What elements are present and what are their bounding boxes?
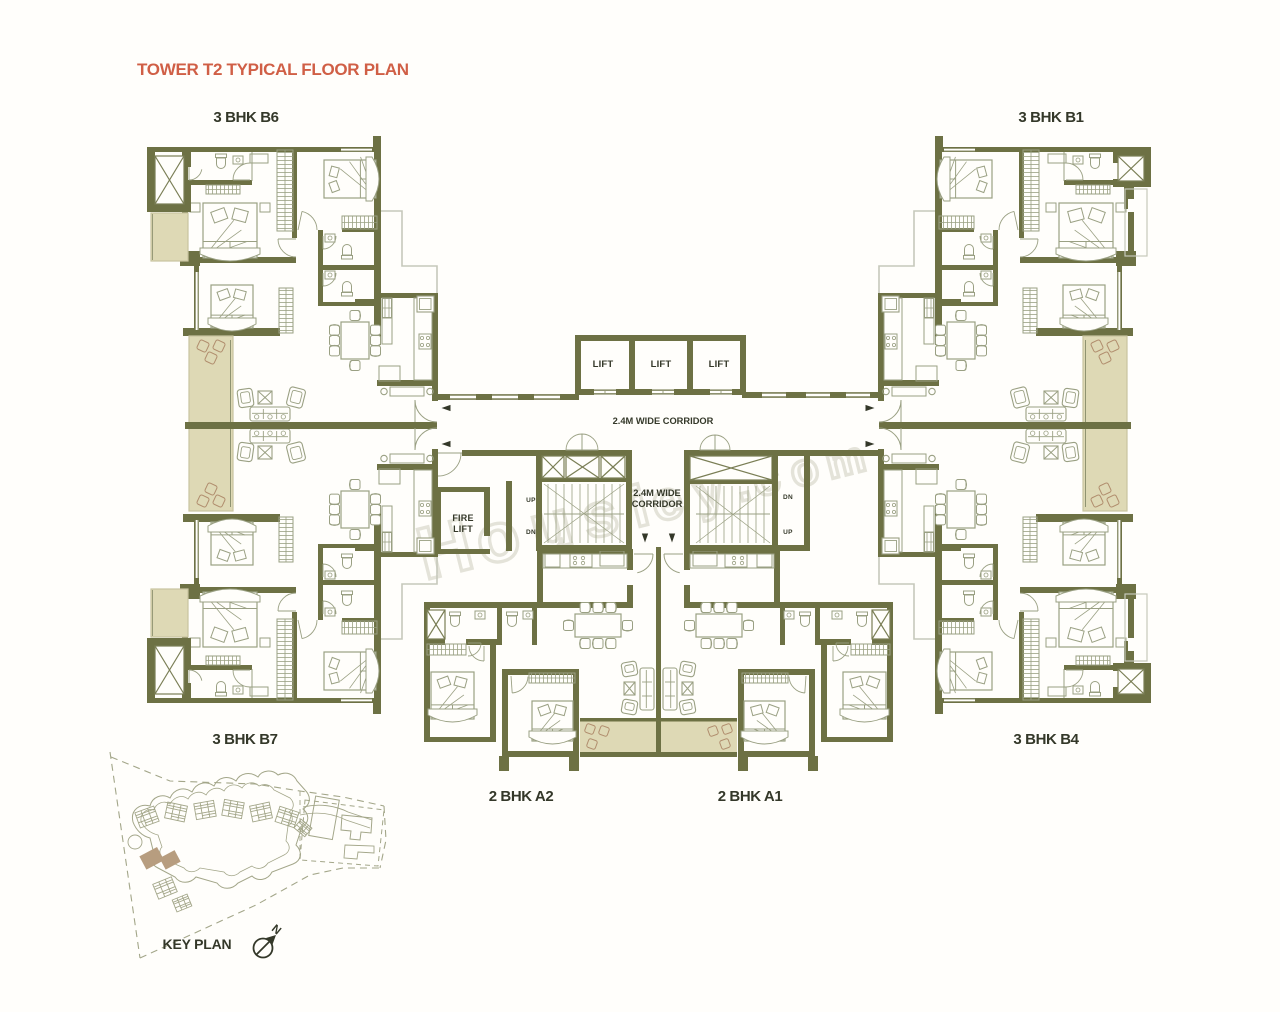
svg-text:3 BHK B1: 3 BHK B1 xyxy=(1018,109,1083,126)
svg-text:2.4M WIDE: 2.4M WIDE xyxy=(633,488,681,498)
svg-text:KEY PLAN: KEY PLAN xyxy=(163,936,232,952)
svg-text:2 BHK A1: 2 BHK A1 xyxy=(718,788,783,805)
svg-text:CORRIDOR: CORRIDOR xyxy=(632,499,683,509)
svg-text:UP: UP xyxy=(783,529,793,536)
svg-text:2.4M WIDE CORRIDOR: 2.4M WIDE CORRIDOR xyxy=(613,416,714,426)
svg-text:DN: DN xyxy=(783,494,793,501)
svg-text:TOWER T2 TYPICAL FLOOR PLAN: TOWER T2 TYPICAL FLOOR PLAN xyxy=(137,60,409,79)
svg-text:LIFT: LIFT xyxy=(593,359,614,370)
svg-text:LIFT: LIFT xyxy=(651,359,672,370)
svg-text:3 BHK B4: 3 BHK B4 xyxy=(1013,731,1079,748)
svg-text:3 BHK B7: 3 BHK B7 xyxy=(212,731,277,748)
svg-text:3 BHK B6: 3 BHK B6 xyxy=(213,109,278,126)
svg-text:LIFT: LIFT xyxy=(453,524,473,534)
svg-text:LIFT: LIFT xyxy=(709,359,730,370)
svg-text:FIRE: FIRE xyxy=(452,513,473,523)
svg-text:DN: DN xyxy=(526,529,536,536)
svg-text:UP: UP xyxy=(526,497,536,504)
svg-text:2 BHK A2: 2 BHK A2 xyxy=(489,788,554,805)
